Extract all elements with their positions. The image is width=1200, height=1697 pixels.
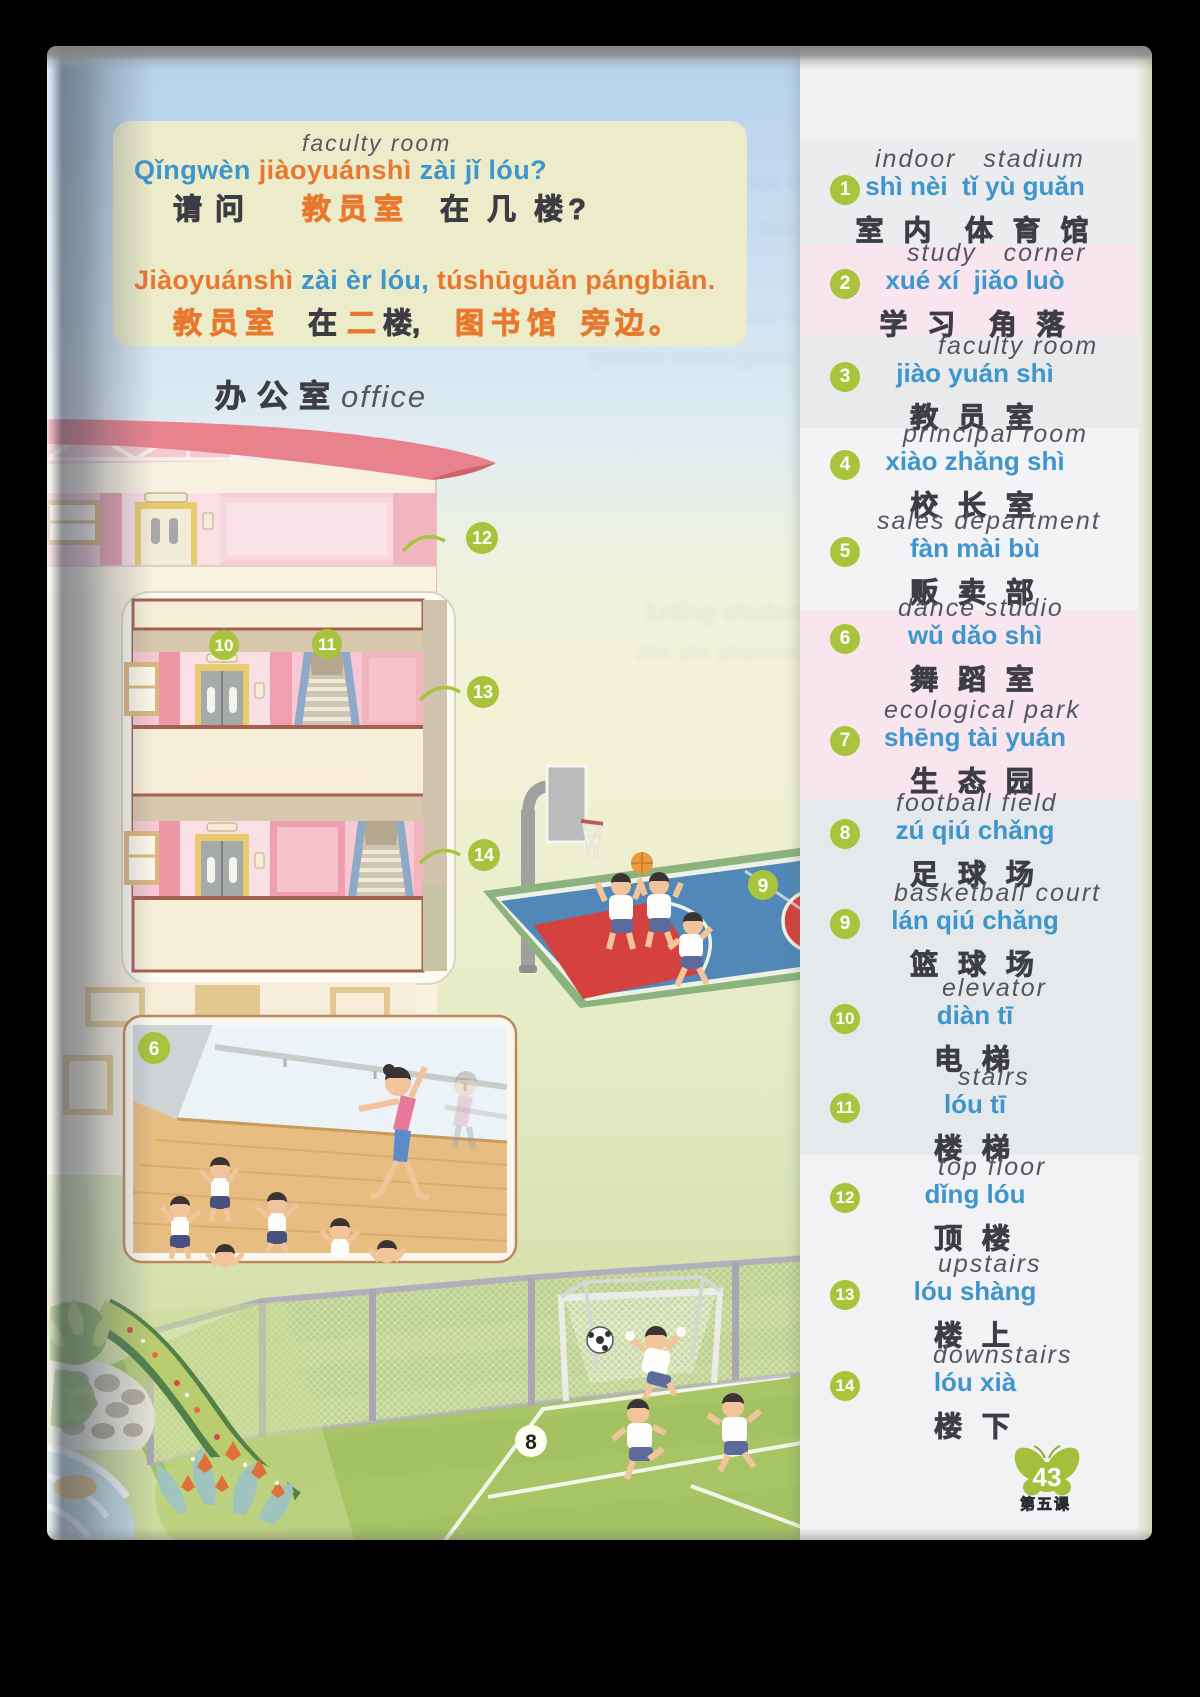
svg-text:13: 13 <box>473 682 493 702</box>
svg-text:14: 14 <box>474 845 494 865</box>
svg-text:8: 8 <box>525 1431 537 1454</box>
svg-text:xiao zhun jiandao le: xiao zhun jiandao le <box>195 760 372 782</box>
svg-text:9: 9 <box>758 876 769 897</box>
svg-text:12: 12 <box>472 528 492 548</box>
svg-text:43: 43 <box>1033 1462 1062 1492</box>
svg-text:10: 10 <box>215 636 234 655</box>
svg-text:11: 11 <box>318 635 336 654</box>
svg-text:6: 6 <box>149 1039 160 1060</box>
